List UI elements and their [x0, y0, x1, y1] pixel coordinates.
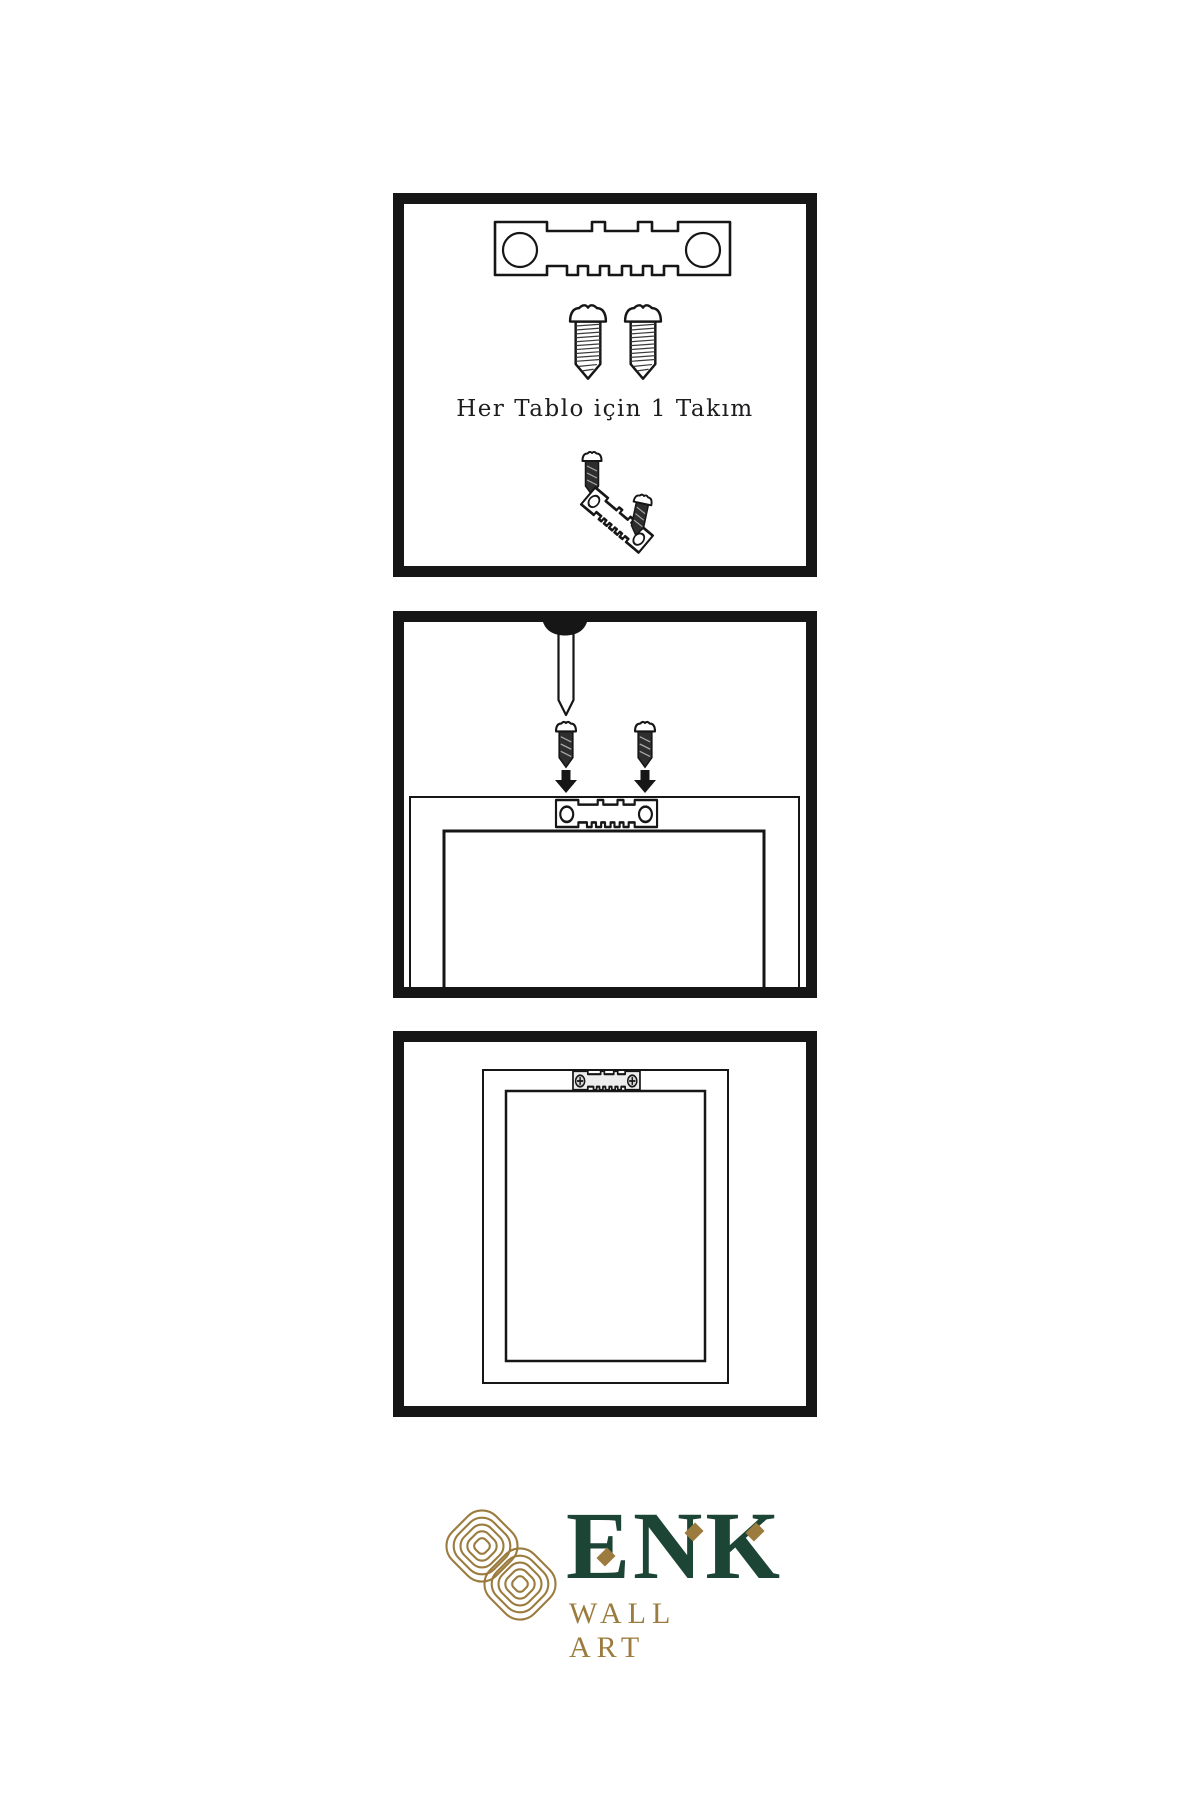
- set-caption: Her Tablo için 1 Takım: [404, 396, 806, 422]
- dark-screw-icon: [556, 722, 576, 767]
- brand-subtitle: WALL ART: [569, 1597, 675, 1665]
- dark-screw-icon: [635, 722, 655, 767]
- arrow-down-icon: [634, 770, 656, 793]
- screw-icon: [570, 305, 606, 378]
- step1-illustration: [404, 204, 806, 566]
- hanger-assembly-icon: [581, 452, 653, 553]
- instruction-sheet: Her Tablo için 1 Takım: [0, 0, 1200, 1800]
- sawtooth-hanger-icon: [495, 222, 730, 275]
- step2-mounting-panel: [393, 611, 817, 998]
- sawtooth-hanger-mounted-icon: [573, 1071, 640, 1090]
- nail-icon: [543, 622, 587, 715]
- step3-illustration: [404, 1042, 806, 1407]
- screw-icon: [625, 305, 661, 378]
- step3-hung-frame-panel: [393, 1031, 817, 1417]
- knot-icon: [438, 1502, 564, 1628]
- frame-inner-edge: [444, 831, 764, 987]
- arrow-down-icon: [555, 770, 577, 793]
- frame-inner-edge: [506, 1091, 705, 1361]
- frame-outer-edge: [483, 1070, 728, 1383]
- brand-name: ENK: [566, 1498, 783, 1594]
- phillips-screw-icon: [576, 1075, 585, 1086]
- step2-illustration: [404, 622, 806, 987]
- phillips-screw-icon: [628, 1075, 637, 1086]
- sawtooth-hanger-icon: [556, 800, 657, 827]
- step1-hardware-panel: Her Tablo için 1 Takım: [393, 193, 817, 577]
